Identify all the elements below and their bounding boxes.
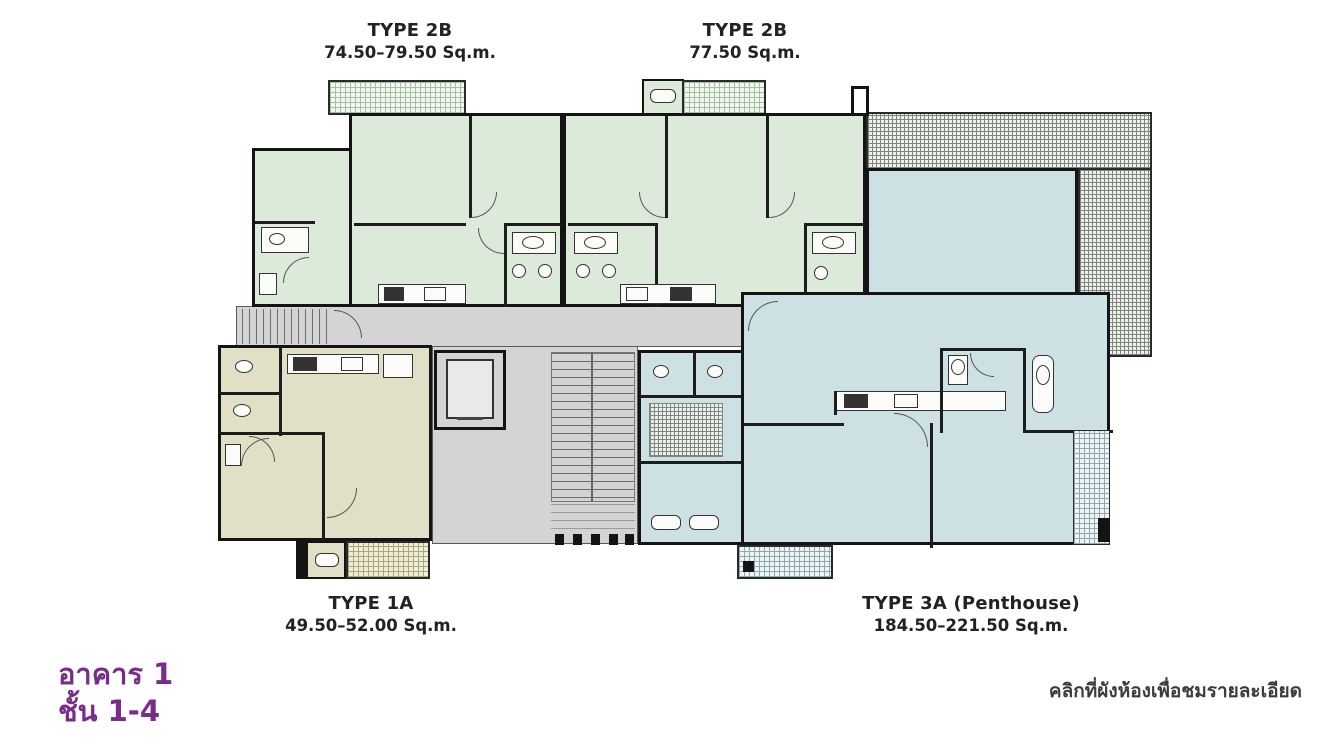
unit-type1a[interactable] [218,345,432,541]
wall-stub [296,541,306,579]
balcony-type1a [346,541,430,579]
wall-stub [1098,518,1110,542]
ac-ledge-type2b-right [642,79,684,116]
unit-type2b-left-annex[interactable] [252,148,352,307]
entry-stair [242,309,332,344]
ac-ledge-type1a [306,541,346,579]
unit-type2b-right[interactable] [563,113,866,307]
balcony-type3a [737,545,833,579]
unit-type3a-annex[interactable] [638,350,744,545]
terrace-penthouse-top [866,112,1152,170]
floorplan [0,0,1342,754]
wall-stub [851,86,869,116]
balcony-type2b-left [328,80,466,115]
unit-type2b-left[interactable] [349,113,563,307]
unit-type3a-upper[interactable] [866,168,1078,295]
elevator-shaft [434,350,506,430]
balcony-type2b-right [682,80,766,115]
main-stair [551,352,635,544]
floorplan-page: TYPE 2B 74.50–79.50 Sq.m. TYPE 2B 77.50 … [0,0,1342,754]
unit-type3a-main[interactable] [741,292,1110,545]
